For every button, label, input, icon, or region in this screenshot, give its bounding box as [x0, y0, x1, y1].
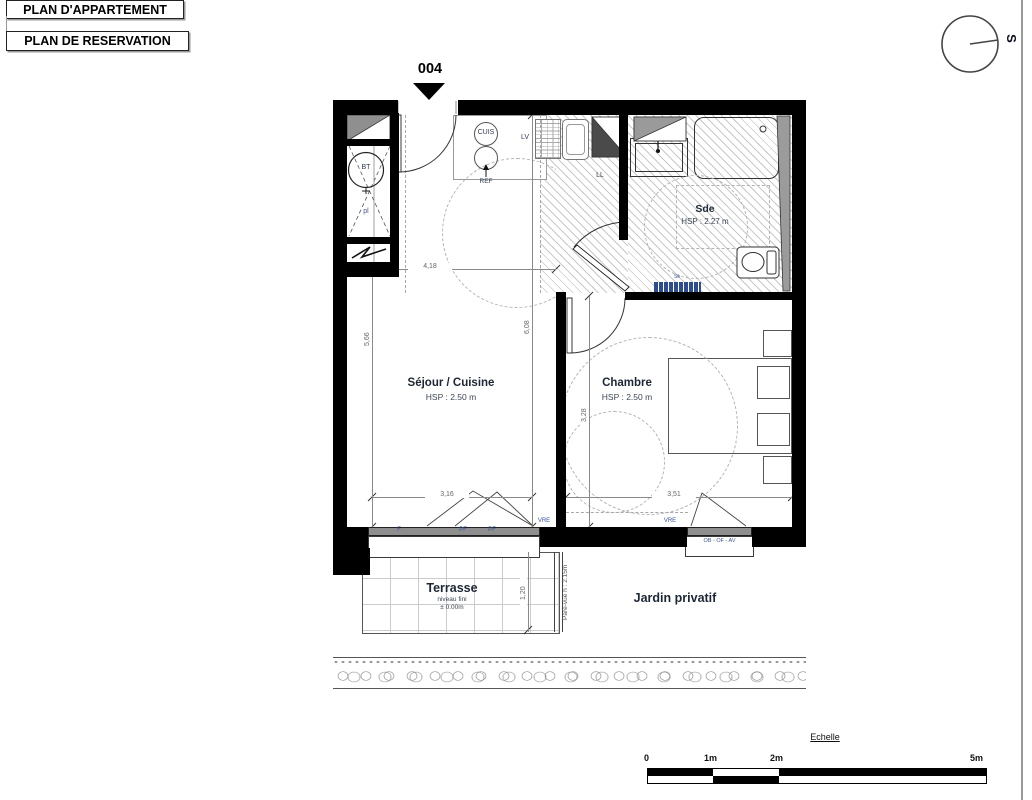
page-left-tick	[6, 16, 7, 31]
compass-icon	[938, 13, 1004, 79]
dim-328: 3,28	[581, 398, 588, 432]
wall-sde-left	[619, 113, 628, 240]
scale-title: Echelle	[780, 732, 870, 742]
scale-tick-5m: 5m	[970, 753, 983, 763]
hall-dashed-line-right	[540, 115, 541, 293]
reservation-title-box: PLAN DE RESERVATION	[6, 31, 189, 51]
wall-top-right	[458, 100, 806, 115]
scale-tick-1m: 1m	[704, 753, 717, 763]
wall-bottom-left-foot	[333, 548, 370, 575]
sejour-window-sill	[368, 536, 540, 558]
sde-hsp: HSP : 2.27 m	[655, 217, 755, 226]
scale-tick-2m: 2m	[770, 753, 783, 763]
dim-566: 5,66	[364, 322, 371, 356]
sde-name: Sde	[655, 203, 755, 215]
dim-line-608	[532, 115, 533, 527]
window-pf2-label: PF	[485, 527, 499, 533]
pl-label: pl	[351, 208, 381, 215]
compass-south-label: S	[1004, 34, 1019, 43]
chambre-window-sill: OB - OF - AV	[685, 536, 754, 557]
dim-608: 6,08	[524, 310, 531, 344]
turning-circle-sejour	[442, 158, 556, 308]
jardin-name: Jardin privatif	[605, 591, 745, 605]
chambre-dashed-line	[566, 512, 688, 513]
kitchen-sink-bowl	[566, 124, 585, 155]
plan-title-box: PLAN D'APPARTEMENT	[6, 0, 184, 19]
seche-serviette-label: Sè	[664, 274, 690, 280]
hall-dashed-line-left	[405, 115, 406, 293]
cuis-label: CUIS	[470, 129, 502, 136]
wall-right	[792, 100, 806, 547]
scale-bar: Echelle 0 1m 2m 5m	[640, 730, 1000, 790]
page-right-border	[1021, 0, 1023, 800]
dim-351: 3,51	[652, 491, 696, 498]
ll-label: LL	[590, 172, 610, 179]
dim-316: 3,16	[425, 491, 469, 498]
scale-tick-0: 0	[644, 753, 649, 763]
vre-sejour-label: VRE	[534, 518, 554, 524]
wall-bottom-right	[752, 527, 806, 547]
entrance-marker-icon	[413, 83, 445, 100]
sejour-hsp: HSP : 2.50 m	[361, 392, 541, 402]
dim-418: 4,18	[408, 263, 452, 270]
vre-chambre-label: VRE	[660, 518, 680, 524]
wall-closet-divider-2	[347, 237, 390, 244]
sejour-name: Séjour / Cuisine	[361, 377, 541, 389]
wall-sejour-chambre	[556, 292, 566, 527]
rubble-strip	[333, 665, 806, 689]
wall-closet-bottom	[333, 262, 399, 277]
window-f-label: F	[392, 527, 406, 533]
wall-closet-divider-1	[347, 139, 390, 146]
reservation-title: PLAN DE RESERVATION	[24, 34, 171, 48]
ref-label: REF	[473, 178, 499, 185]
window-pf1-label: PF	[456, 527, 470, 533]
turning-circle-chambre-2	[566, 337, 738, 515]
terrasse-niveau-1: niveau fini	[382, 596, 522, 603]
wall-closet-right	[390, 113, 399, 277]
scale-bar-box	[647, 768, 987, 784]
plan-title: PLAN D'APPARTEMENT	[23, 3, 167, 17]
floor-plan-page: PLAN D'APPARTEMENT PLAN DE RESERVATION S…	[0, 0, 1032, 800]
terrasse-name: Terrasse	[382, 581, 522, 595]
chambre-hsp: HSP : 2.50 m	[537, 392, 717, 402]
lv-label: LV	[515, 134, 535, 141]
shutter-label: OB - OF - AV	[686, 538, 753, 544]
chambre-name: Chambre	[537, 377, 717, 389]
wall-bottom-left-block	[333, 527, 368, 548]
dim-120: 1,20	[520, 577, 527, 609]
chambre-window	[687, 527, 752, 536]
wall-left	[333, 100, 347, 548]
dim-line-328	[589, 296, 590, 527]
wall-bottom-middle	[540, 527, 687, 547]
pare-vue-label: Pare-vue h : 2.15m	[562, 552, 569, 632]
bt-label: BT	[351, 164, 381, 171]
dim-line-120	[528, 552, 529, 632]
unit-number: 004	[398, 61, 462, 77]
wall-sde-bottom	[625, 292, 792, 300]
terrasse-niveau-2: ± 0.00m	[382, 604, 522, 611]
